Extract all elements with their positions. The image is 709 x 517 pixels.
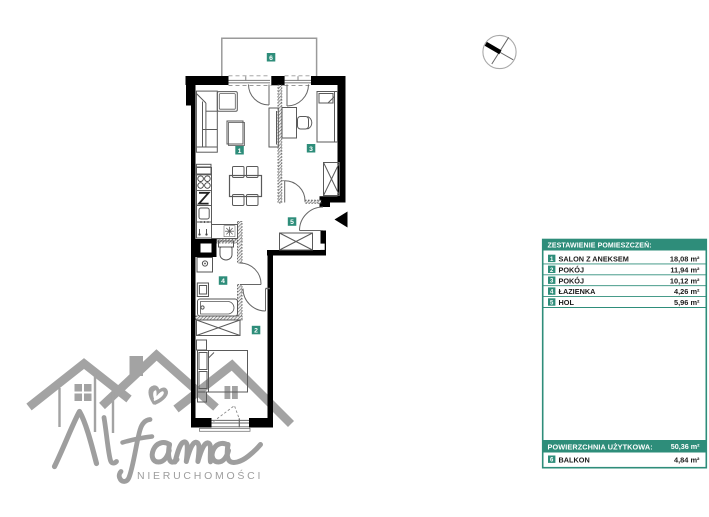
- svg-text:5,96 m²: 5,96 m²: [674, 298, 700, 307]
- svg-text:5: 5: [290, 219, 294, 226]
- svg-text:NIERUCHOMOŚCI: NIERUCHOMOŚCI: [137, 469, 263, 482]
- svg-text:POKÓJ: POKÓJ: [559, 265, 585, 274]
- svg-text:HOL: HOL: [559, 298, 575, 307]
- svg-text:SALON Z ANEKSEM: SALON Z ANEKSEM: [559, 255, 629, 264]
- svg-text:POWIERZCHNIA UŻYTKOWA:: POWIERZCHNIA UŻYTKOWA:: [548, 442, 653, 451]
- svg-text:4,84 m²: 4,84 m²: [674, 455, 700, 464]
- svg-text:11,94 m²: 11,94 m²: [670, 265, 700, 274]
- svg-text:4,26 m²: 4,26 m²: [674, 287, 700, 296]
- svg-text:18,08 m²: 18,08 m²: [670, 255, 700, 264]
- svg-text:ZESTAWIENIE POMIESZCZEŃ:: ZESTAWIENIE POMIESZCZEŃ:: [548, 241, 652, 250]
- svg-text:POKÓJ: POKÓJ: [559, 276, 585, 285]
- svg-text:50,36 m²: 50,36 m²: [671, 442, 700, 451]
- svg-text:6: 6: [269, 55, 273, 62]
- svg-text:10,12 m²: 10,12 m²: [670, 276, 700, 285]
- svg-text:BALKON: BALKON: [559, 455, 590, 464]
- svg-text:3: 3: [309, 146, 313, 153]
- svg-text:2: 2: [254, 328, 258, 335]
- svg-text:1: 1: [238, 148, 242, 155]
- svg-text:ŁAZIENKA: ŁAZIENKA: [559, 287, 597, 296]
- svg-text:4: 4: [221, 278, 225, 285]
